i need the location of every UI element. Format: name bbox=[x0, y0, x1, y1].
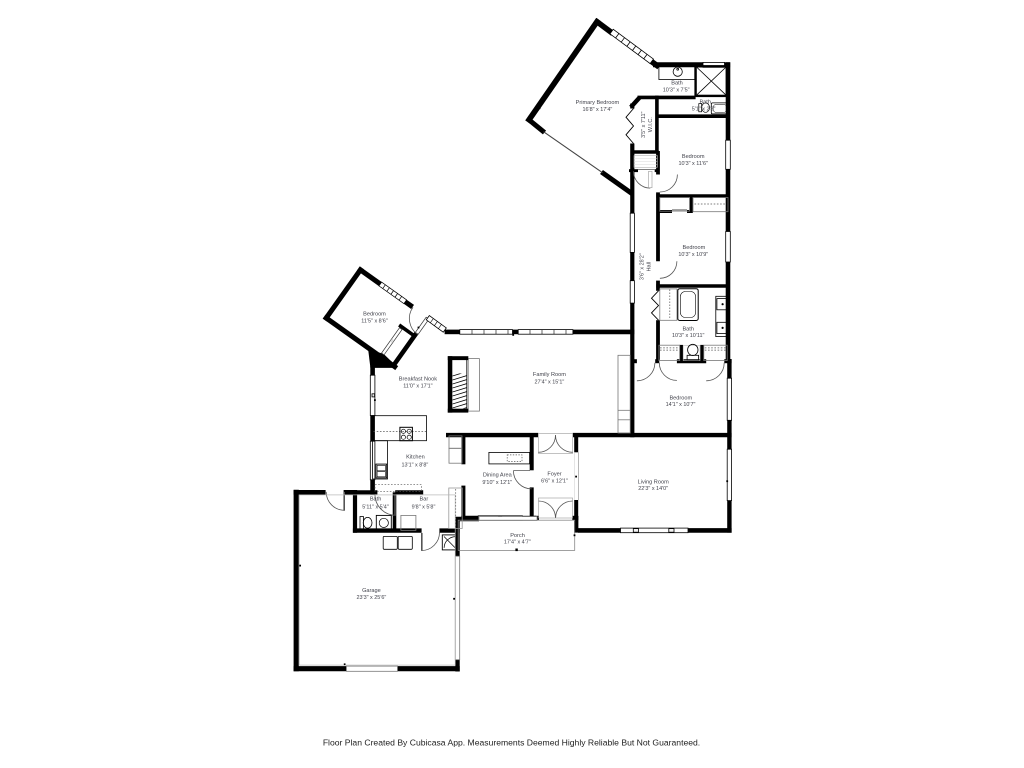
svg-text:Bedroom: Bedroom bbox=[683, 245, 706, 251]
svg-text:Floor Plan Created By Cubicasa: Floor Plan Created By Cubicasa App. Meas… bbox=[323, 738, 700, 748]
svg-text:Breakfast Nook: Breakfast Nook bbox=[399, 377, 437, 383]
svg-text:Hall: Hall bbox=[646, 262, 652, 272]
svg-text:Family Room: Family Room bbox=[533, 372, 566, 378]
svg-text:3'6" x 28'2": 3'6" x 28'2" bbox=[639, 253, 645, 280]
svg-text:Living Room: Living Room bbox=[638, 480, 669, 486]
svg-text:11'0" x 17'1": 11'0" x 17'1" bbox=[403, 384, 432, 390]
svg-text:Bath: Bath bbox=[671, 81, 683, 87]
svg-text:Bath: Bath bbox=[682, 327, 694, 333]
svg-text:Dining Area: Dining Area bbox=[483, 473, 513, 479]
svg-text:6'6" x 12'1": 6'6" x 12'1" bbox=[541, 479, 568, 485]
svg-text:10'3" x 10'9": 10'3" x 10'9" bbox=[678, 252, 708, 258]
svg-text:10'3" x 10'11": 10'3" x 10'11" bbox=[672, 333, 705, 339]
svg-text:W.I.C.: W.I.C. bbox=[648, 117, 654, 133]
svg-text:9'8" x 5'8": 9'8" x 5'8" bbox=[412, 505, 436, 511]
svg-text:13'1" x 8'8": 13'1" x 8'8" bbox=[401, 463, 428, 469]
svg-text:22'3" x 14'0": 22'3" x 14'0" bbox=[638, 486, 668, 492]
svg-text:9'10" x 12'1": 9'10" x 12'1" bbox=[482, 480, 512, 486]
svg-text:Foyer: Foyer bbox=[547, 472, 561, 478]
svg-text:Primary Bedroom: Primary Bedroom bbox=[576, 100, 620, 106]
svg-text:10'3" x 7'5": 10'3" x 7'5" bbox=[663, 88, 690, 94]
svg-text:11'5" x 8'6": 11'5" x 8'6" bbox=[361, 319, 387, 325]
svg-text:Porch: Porch bbox=[510, 533, 525, 539]
svg-text:Bar: Bar bbox=[420, 497, 429, 503]
svg-text:16'8" x 17'4": 16'8" x 17'4" bbox=[582, 107, 612, 113]
svg-text:Bedroom: Bedroom bbox=[669, 396, 692, 402]
svg-text:Garage: Garage bbox=[362, 588, 381, 594]
svg-text:Bedroom: Bedroom bbox=[363, 311, 386, 317]
svg-text:17'4" x 4'7": 17'4" x 4'7" bbox=[504, 540, 531, 546]
svg-text:27'4" x 15'1": 27'4" x 15'1" bbox=[534, 380, 564, 386]
svg-text:Bath: Bath bbox=[370, 497, 382, 503]
svg-text:10'3" x 11'6": 10'3" x 11'6" bbox=[678, 161, 707, 167]
svg-text:Bath: Bath bbox=[699, 99, 711, 105]
svg-text:5'1" x 2'8": 5'1" x 2'8" bbox=[692, 107, 716, 113]
svg-text:3'5" x 7'11": 3'5" x 7'11" bbox=[641, 111, 647, 137]
svg-text:5'11" x 5'4": 5'11" x 5'4" bbox=[362, 505, 388, 511]
svg-text:Bedroom: Bedroom bbox=[682, 154, 705, 160]
svg-text:14'1" x 10'7": 14'1" x 10'7" bbox=[666, 402, 696, 408]
svg-text:Kitchen: Kitchen bbox=[406, 454, 425, 460]
svg-text:23'3" x 25'6": 23'3" x 25'6" bbox=[356, 595, 386, 601]
